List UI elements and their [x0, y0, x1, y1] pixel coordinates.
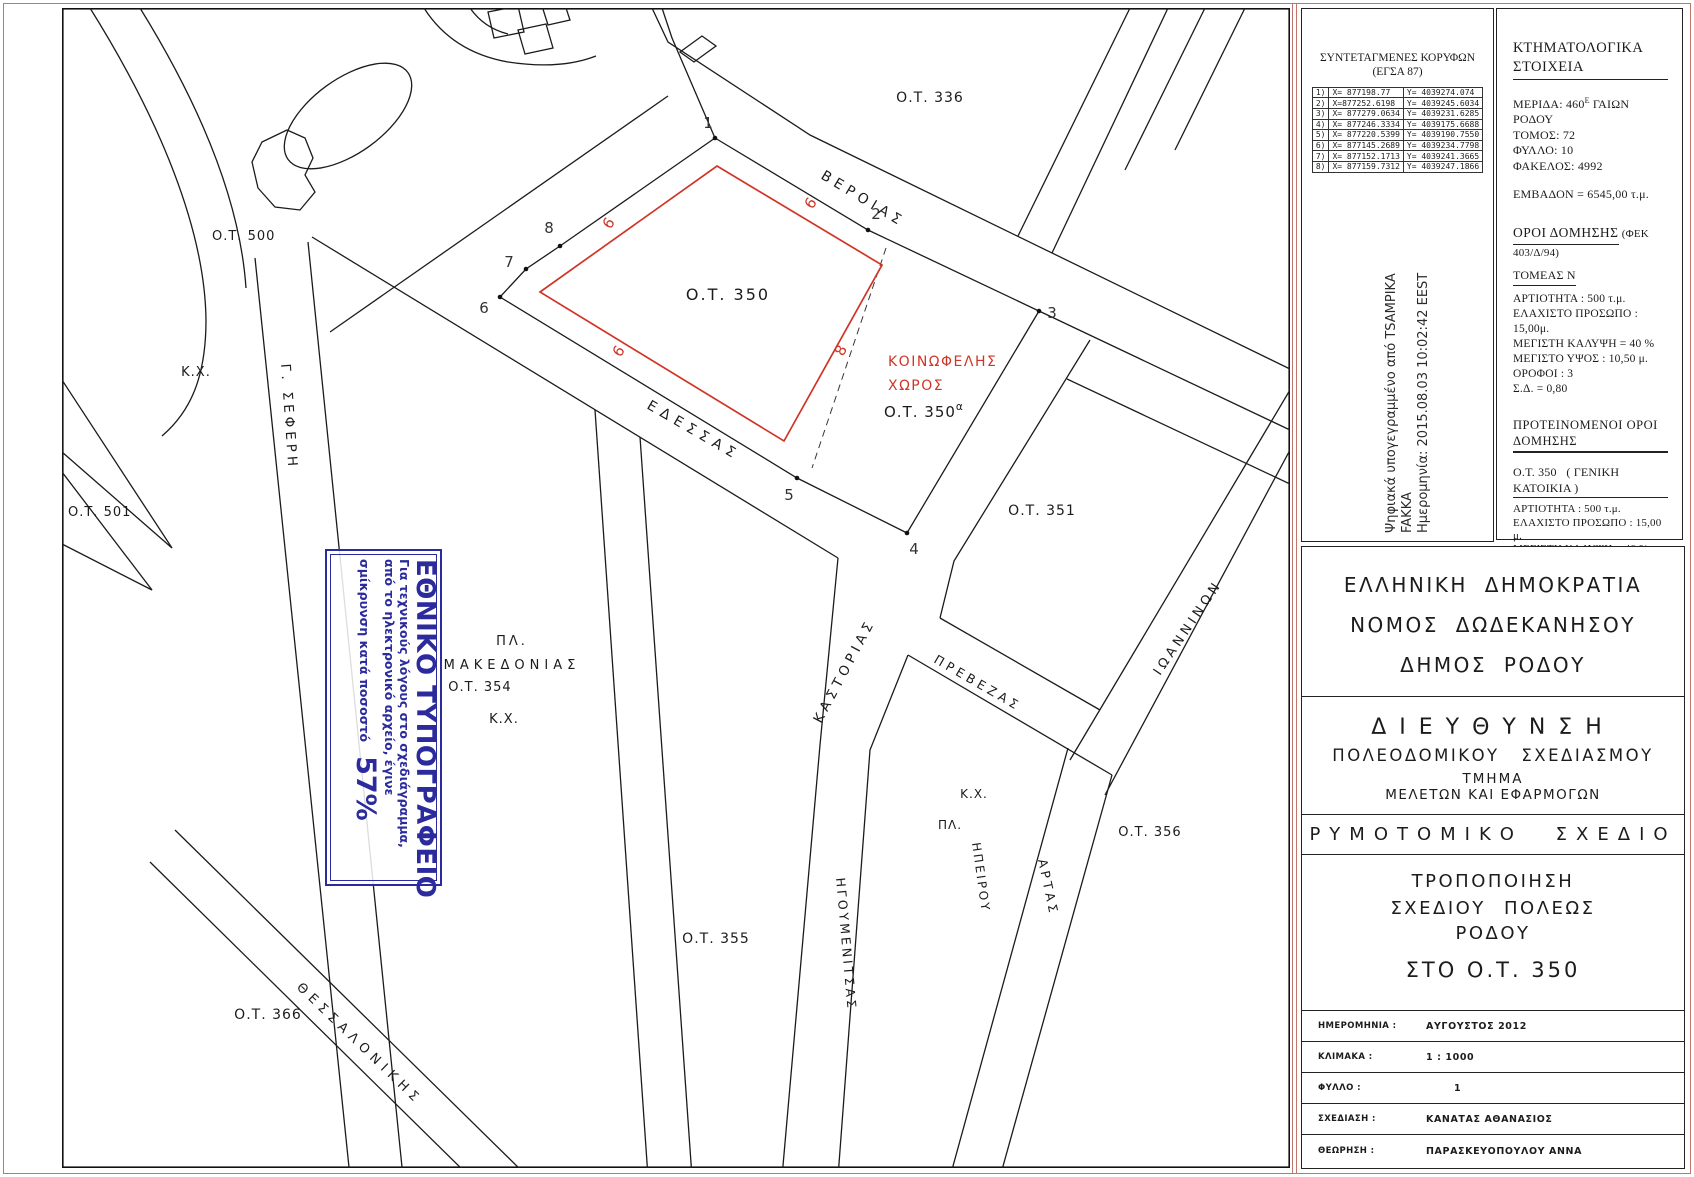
- digital-signature: Ψηφιακά υπογεγραμμένο από TSAMPIKA FAKKA…: [1384, 233, 1434, 533]
- x-value: X= 877279.0634: [1329, 108, 1403, 119]
- label-makedonias: ΜΑΚΕΔΟΝΙΑΣ: [444, 658, 581, 673]
- dim-6-nw: 6: [599, 214, 619, 232]
- koinofelis-annotation: ΚΟΙΝΩΦΕΛΗΣ ΧΩΡΟΣ: [888, 354, 997, 394]
- title-block-authority: ΕΛΛΗΝΙΚΗ ΔΗΜΟΚΡΑΤΙΑ ΝΟΜΟΣ ΔΩΔΕΚΑΝΗΣΟΥ ΔΗ…: [1301, 546, 1685, 698]
- street-lines: [62, 8, 1290, 1168]
- coordinates-title: ΣΥΝΤΕΤΑΓΜΕΝΕΣ ΚΟΡΥΦΩΝ (ΕΓΣΑ 87): [1302, 51, 1493, 80]
- row-num: 5): [1312, 130, 1329, 141]
- department-line2: ΠΟΛΕΟΔΟΜΙΚΟΥ ΣΧΕΔΙΑΣΜΟΥ: [1302, 746, 1684, 765]
- label-ot351: Ο.Τ. 351: [1008, 503, 1076, 519]
- terms-item: ΜΕΓΙΣΤΗ ΚΑΛΥΨΗ = 40 %: [1513, 337, 1668, 352]
- title-block-meta: ΗΜΕΡΟΜΗΝΙΑ :ΑΥΓΟΥΣΤΟΣ 2012 ΚΛΙΜΑΚΑ :1 : …: [1301, 1010, 1685, 1169]
- coordinates-box: ΣΥΝΤΕΤΑΓΜΕΝΕΣ ΚΟΡΥΦΩΝ (ΕΓΣΑ 87) 1)X= 877…: [1301, 8, 1494, 542]
- cadastral-fyllo: ΦΥΛΛΟ: 10: [1513, 143, 1668, 159]
- koinofelis-line1: ΚΟΙΝΩΦΕΛΗΣ: [888, 354, 997, 370]
- street-prevezas: ΠΡΕΒΕΖΑΣ: [932, 652, 1025, 714]
- cadastral-tomos: ΤΟΜΟΣ: 72: [1513, 128, 1668, 144]
- terms-item: ΟΡΟΦΟΙ : 3: [1513, 367, 1668, 382]
- department-line4: ΜΕΛΕΤΩΝ ΚΑΙ ΕΦΑΡΜΟΓΩΝ: [1302, 787, 1684, 803]
- stamp-text-3: σμίκρυνση κατά ποσοστό57%: [349, 559, 381, 876]
- terms-item: ΕΛΑΧΙΣΤΟ ΠΡΟΣΩΠΟ : 15,00μ.: [1513, 307, 1668, 337]
- coordinates-title-line2: (ΕΓΣΑ 87): [1302, 65, 1493, 79]
- cadastral-title: ΚΤΗΜΑΤΟΛΟΓΙΚΑ ΣΤΟΙΧΕΙΑ: [1513, 39, 1668, 80]
- label-ot354: Ο.Τ. 354: [448, 680, 511, 695]
- merida-pre: ΜΕΡΙΔΑ: 460: [1513, 97, 1585, 111]
- row-num: 4): [1312, 119, 1329, 130]
- red-dimensions: 6 6 6 8: [599, 194, 851, 360]
- y-value: Y= 4039247.1866: [1403, 161, 1482, 172]
- label-ot350a-sup: α: [956, 401, 964, 413]
- drawing-type-label: ΡΥΜΟΤΟΜΙΚΟ ΣΧΕΔΙΟ: [1302, 824, 1684, 845]
- merida-sup: Ε: [1585, 96, 1590, 105]
- stamp-text-1: Για τεχνικούς λόγους στο σχεδιάγραμμα,: [396, 559, 411, 876]
- meta-label: ΦΥΛΛΟ :: [1302, 1083, 1426, 1093]
- terms-header: ΟΡΟΙ ΔΟΜΗΣΗΣ (ΦΕΚ 403/Δ/94): [1513, 224, 1668, 260]
- vertex-8: 8: [544, 219, 554, 237]
- row-num: 8): [1312, 161, 1329, 172]
- y-value: Y= 4039274.074: [1403, 87, 1482, 98]
- proposed-item: ΕΛΑΧΙΣΤΟ ΠΡΟΣΩΠΟ : 15,00 μ.: [1513, 517, 1668, 544]
- x-value: X= 877198.77: [1329, 87, 1403, 98]
- dim-8: 8: [831, 342, 851, 359]
- vertex-numbers: 1 2 3 4 5 6 7 8: [479, 114, 1057, 558]
- department-line1: ΔΙΕΥΘΥΝΣΗ: [1302, 715, 1684, 740]
- coordinates-title-line1: ΣΥΝΤΕΤΑΓΜΕΝΕΣ ΚΟΡΥΦΩΝ: [1302, 51, 1493, 65]
- subject-line2: ΣΧΕΔΙΟΥ ΠΟΛΕΩΣ: [1302, 898, 1684, 919]
- y-value: Y= 4039190.7550: [1403, 130, 1482, 141]
- y-value: Y= 4039231.6285: [1403, 108, 1482, 119]
- meta-label: ΚΛΙΜΑΚΑ :: [1302, 1052, 1426, 1062]
- dim-6-ne: 6: [801, 194, 821, 212]
- subject-line3: ΡΟΔΟΥ: [1302, 923, 1684, 944]
- table-row: 6)X= 877145.2689Y= 4039234.7798: [1312, 140, 1482, 151]
- label-ot350a-pre: Ο.Τ. 350: [884, 403, 956, 421]
- authority-line3: ΔΗΜΟΣ ΡΟΔΟΥ: [1302, 653, 1684, 677]
- meta-value: 1 : 1000: [1426, 1052, 1474, 1063]
- title-block-drawing-type: ΡΥΜΟΤΟΜΙΚΟ ΣΧΕΔΙΟ: [1301, 814, 1685, 856]
- y-value: Y= 4039175.6688: [1403, 119, 1482, 130]
- stamp-title: ΕΘΝΙΚΟ ΤΥΠΟΓΡΑΦΕΙΟ: [411, 559, 438, 876]
- table-row: 4)X= 877246.3334Y= 4039175.6688: [1312, 119, 1482, 130]
- meta-label: ΘΕΩΡΗΣΗ :: [1302, 1146, 1426, 1156]
- title-block-subject: ΤΡΟΠΟΠΟΙΗΣΗ ΣΧΕΔΙΟΥ ΠΟΛΕΩΣ ΡΟΔΟΥ ΣΤΟ Ο.Τ…: [1301, 854, 1685, 1012]
- cadastral-terms-box: ΚΤΗΜΑΤΟΛΟΓΙΚΑ ΣΤΟΙΧΕΙΑ ΜΕΡΙΔΑ: 460Ε ΓΑΙΩ…: [1496, 8, 1683, 540]
- proposed-title: ΠΡΟΤΕΙΝΟΜΕΝΟΙ ΟΡΟΙ ΔΟΜΗΣΗΣ: [1513, 417, 1668, 454]
- terms-item: ΑΡΤΙΟΤΗΤΑ : 500 τ.μ.: [1513, 292, 1668, 307]
- label-ot350a: Ο.Τ. 350α: [884, 401, 964, 421]
- row-num: 6): [1312, 140, 1329, 151]
- terms-item: ΜΕΓΙΣΤΟ ΥΨΟΣ : 10,50 μ.: [1513, 352, 1668, 367]
- proposed-s1-pre: Ο.Τ. 350: [1513, 465, 1557, 479]
- label-kx-plaza: Κ.Χ.: [960, 787, 988, 801]
- meta-label: ΗΜΕΡΟΜΗΝΙΑ :: [1302, 1021, 1426, 1031]
- label-ot350: Ο.Τ. 350: [686, 285, 770, 304]
- vertex-5: 5: [784, 486, 794, 504]
- meta-row-scale: ΚΛΙΜΑΚΑ :1 : 1000: [1302, 1041, 1684, 1072]
- street-kastorias: ΚΑΣΤΟΡΙΑΣ: [810, 616, 879, 726]
- subject-line1: ΤΡΟΠΟΠΟΙΗΣΗ: [1302, 871, 1684, 892]
- label-ot355: Ο.Τ. 355: [682, 931, 750, 947]
- proposed-s1-title: Ο.Τ. 350 ( ΓΕΝΙΚΗ ΚΑΤΟΙΚΙΑ ): [1513, 465, 1668, 498]
- street-verias: ΒΕΡΟΙΑΣ: [818, 168, 908, 231]
- x-value: X= 877152.1713: [1329, 151, 1403, 162]
- meta-row-sheet: ΦΥΛΛΟ :1: [1302, 1072, 1684, 1103]
- stadium-oval: [266, 43, 429, 190]
- table-row: 3)X= 877279.0634Y= 4039231.6285: [1312, 108, 1482, 119]
- terms-title: ΟΡΟΙ ΔΟΜΗΣΗΣ: [1513, 224, 1619, 245]
- signature-line3: Ημερομηνία: 2015.08.03 10:02:42 EEST: [1416, 233, 1432, 533]
- label-kx-makedonias: Κ.Χ.: [489, 712, 519, 727]
- street-ioanninon: ΙΩΑΝΝΙΝΩΝ: [1151, 578, 1226, 679]
- stamp-content: ΕΘΝΙΚΟ ΤΥΠΟΓΡΑΦΕΙΟ Για τεχνικούς λόγους …: [327, 551, 440, 884]
- meta-label: ΣΧΕΔΙΑΣΗ :: [1302, 1114, 1426, 1124]
- stamp-text-3-label: σμίκρυνση κατά ποσοστό: [357, 559, 372, 742]
- table-row: 7)X= 877152.1713Y= 4039241.3665: [1312, 151, 1482, 162]
- street-artas: ΑΡΤΑΣ: [1035, 858, 1062, 918]
- meta-value: ΚΑΝΑΤΑΣ ΑΘΑΝΑΣΙΟΣ: [1426, 1114, 1553, 1125]
- title-block-department: ΔΙΕΥΘΥΝΣΗ ΠΟΛΕΟΔΟΜΙΚΟΥ ΣΧΕΔΙΑΣΜΟΥ ΤΜΗΜΑ …: [1301, 696, 1685, 816]
- label-pl-makedonias: ΠΛ.: [496, 634, 528, 649]
- table-row: 5)X= 877220.5399Y= 4039190.7550: [1312, 130, 1482, 141]
- x-value: X= 877220.5399: [1329, 130, 1403, 141]
- x-value: X= 877145.2689: [1329, 140, 1403, 151]
- meta-value: 1: [1454, 1083, 1461, 1094]
- terms-items: ΑΡΤΙΟΤΗΤΑ : 500 τ.μ. ΕΛΑΧΙΣΤΟ ΠΡΟΣΩΠΟ : …: [1513, 292, 1668, 397]
- label-kx-left: Κ.Χ.: [181, 365, 211, 380]
- meta-value: ΠΑΡΑΣΚΕΥΟΠΟΥΛΟΥ ΑΝΝΑ: [1426, 1146, 1582, 1157]
- label-ot501: Ο.Τ. 501: [68, 505, 131, 520]
- vertex-dots: [498, 136, 1042, 536]
- label-ot366: Ο.Τ. 366: [234, 1007, 302, 1023]
- label-ot500: Ο.Τ. 500: [212, 229, 275, 244]
- label-ipeirou: ΗΠΕΙΡΟΥ: [969, 841, 993, 913]
- authority-line1: ΕΛΛΗΝΙΚΗ ΔΗΜΟΚΡΑΤΙΑ: [1302, 573, 1684, 597]
- table-row: 2)X=877252.6198Y= 4039245.6034: [1312, 98, 1482, 109]
- row-num: 7): [1312, 151, 1329, 162]
- terms-sector: ΤΟΜΕΑΣ Ν: [1513, 268, 1576, 286]
- y-value: Y= 4039234.7798: [1403, 140, 1482, 151]
- x-value: X= 877246.3334: [1329, 119, 1403, 130]
- terms-item: Σ.Δ. = 0,80: [1513, 382, 1668, 397]
- label-ot356: Ο.Τ. 356: [1118, 825, 1181, 840]
- cadastral-fakelos: ΦΑΚΕΛΟΣ: 4992: [1513, 159, 1668, 175]
- meta-row-approved: ΘΕΩΡΗΣΗ :ΠΑΡΑΣΚΕΥΟΠΟΥΛΟΥ ΑΝΝΑ: [1302, 1134, 1684, 1167]
- row-num: 2): [1312, 98, 1329, 109]
- label-ot336: Ο.Τ. 336: [896, 90, 964, 106]
- subject-line4: ΣΤΟ Ο.Τ. 350: [1302, 958, 1684, 982]
- koinofelis-line2: ΧΩΡΟΣ: [888, 378, 944, 394]
- city-plan-map: 1 2 3 4 5 6 7 8 6 6 6 8 ΚΟΙΝΩΦΕΛΗΣ ΧΩΡΟΣ…: [62, 8, 1290, 1168]
- meta-row-drafted: ΣΧΕΔΙΑΣΗ :ΚΑΝΑΤΑΣ ΑΘΑΝΑΣΙΟΣ: [1302, 1103, 1684, 1134]
- cadastral-merida: ΜΕΡΙΔΑ: 460Ε ΓΑΙΩΝ ΡΟΔΟΥ: [1513, 96, 1668, 128]
- map-border: [63, 9, 1289, 1167]
- row-num: 3): [1312, 108, 1329, 119]
- signature-line2: FAKKA: [1400, 233, 1416, 533]
- block-split-dashed-line: [812, 248, 886, 468]
- row-num: 1): [1312, 87, 1329, 98]
- authority-line2: ΝΟΜΟΣ ΔΩΔΕΚΑΝΗΣΟΥ: [1302, 613, 1684, 637]
- label-pl-plaza: ΠΛ.: [938, 818, 962, 832]
- coordinates-table: 1)X= 877198.77Y= 4039274.074 2)X=877252.…: [1312, 87, 1483, 173]
- block-labels: Ο.Τ. 336 Ο.Τ. 350 Ο.Τ. 350α Ο.Τ. 351 Ο.Τ…: [68, 90, 1182, 1023]
- street-thessalonikis: ΘΕΣΣΑΛΟΝΙΚΗΣ: [293, 980, 425, 1108]
- cadastral-emvadon: ΕΜΒΑΔΟΝ = 6545,00 τ.μ.: [1513, 187, 1668, 203]
- panel-divider-line-2: [1296, 3, 1297, 1174]
- vertex-6: 6: [479, 299, 489, 317]
- vertex-3: 3: [1047, 304, 1057, 322]
- table-row: 1)X= 877198.77Y= 4039274.074: [1312, 87, 1482, 98]
- table-row: 8)X= 877159.7312Y= 4039247.1866: [1312, 161, 1482, 172]
- y-value: Y= 4039245.6034: [1403, 98, 1482, 109]
- stamp-percentage: 57%: [350, 756, 381, 821]
- meta-value: ΑΥΓΟΥΣΤΟΣ 2012: [1426, 1021, 1527, 1032]
- vertex-1: 1: [703, 114, 713, 132]
- national-printing-office-stamp: ΕΘΝΙΚΟ ΤΥΠΟΓΡΑΦΕΙΟ Για τεχνικούς λόγους …: [325, 549, 442, 886]
- street-seferi: Γ. ΣΕΦΕΡΗ: [277, 363, 300, 470]
- signature-line1: Ψηφιακά υπογεγραμμένο από TSAMPIKA: [1384, 233, 1400, 533]
- panel-divider-line: [1292, 3, 1293, 1174]
- vertex-7: 7: [504, 253, 514, 271]
- department-line3: ΤΜΗΜΑ: [1302, 771, 1684, 787]
- meta-row-date: ΗΜΕΡΟΜΗΝΙΑ :ΑΥΓΟΥΣΤΟΣ 2012: [1302, 1010, 1684, 1041]
- stamp-text-2: από το ηλεκτρονικό αρχείο, έγινε: [381, 559, 396, 876]
- vertex-4: 4: [909, 540, 919, 558]
- proposed-item: ΑΡΤΙΟΤΗΤΑ : 500 τ.μ.: [1513, 503, 1668, 516]
- y-value: Y= 4039241.3665: [1403, 151, 1482, 162]
- x-value: X= 877159.7312: [1329, 161, 1403, 172]
- building-shape: [252, 130, 315, 210]
- x-value: X=877252.6198: [1329, 98, 1403, 109]
